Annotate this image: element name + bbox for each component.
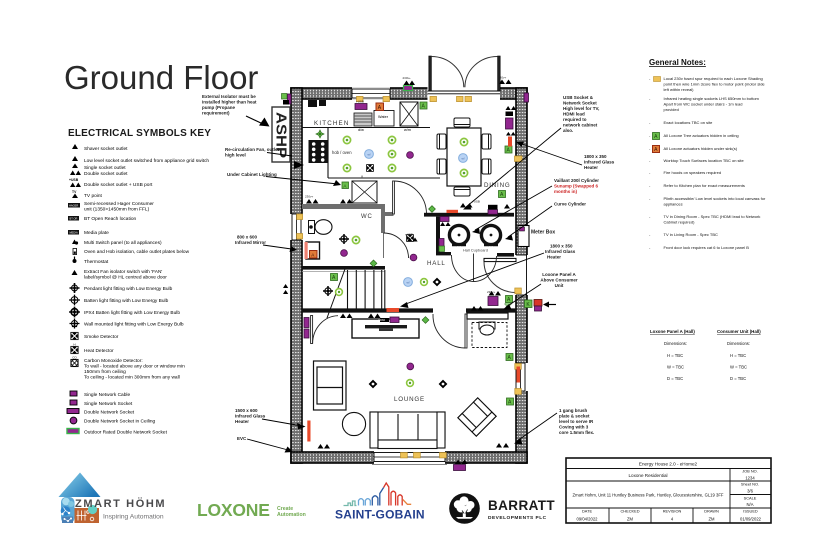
svg-text:Ground Floor: Ground Floor	[64, 59, 258, 96]
svg-text:External Isolator must be: External Isolator must be	[202, 94, 256, 99]
svg-text:+USB: +USB	[69, 178, 79, 182]
svg-text:Infrared Mirror: Infrared Mirror	[235, 240, 266, 245]
svg-text:Inspiring Automation: Inspiring Automation	[103, 514, 164, 521]
svg-text:BARRATT: BARRATT	[488, 498, 555, 513]
svg-text:TV in Living Room - Spec TBC: TV in Living Room - Spec TBC	[664, 232, 719, 237]
svg-text:Double socket outlet: Double socket outlet	[84, 171, 128, 177]
svg-text:H = TBC: H = TBC	[667, 353, 683, 358]
svg-text:Infrared Glass: Infrared Glass	[545, 249, 576, 254]
svg-text:Double Network Socket: Double Network Socket	[84, 410, 135, 416]
svg-text:Cabinet required): Cabinet required)	[664, 220, 696, 225]
svg-text:CO: CO	[72, 355, 77, 359]
svg-text:DATE: DATE	[582, 509, 592, 514]
svg-text:Heater: Heater	[584, 165, 598, 170]
svg-text:USB Socket &: USB Socket &	[563, 95, 594, 100]
svg-text:Extract Fan isolator switch wi: Extract Fan isolator switch with 'FAN'	[84, 269, 162, 275]
svg-text:Batten light fitting with Low: Batten light fitting with Low Energy Bul…	[84, 298, 169, 304]
svg-text:BT Open Reach location: BT Open Reach location	[84, 216, 137, 222]
svg-text:d/w: d/w	[358, 128, 364, 132]
svg-text:DEVELOPMENTS PLC: DEVELOPMENTS PLC	[488, 515, 547, 521]
svg-text:Automation: Automation	[277, 512, 306, 518]
svg-text:High level for TV,: High level for TV,	[563, 106, 599, 111]
svg-text:To ceiling - located min 300m: To ceiling - located min 300mm from any …	[84, 375, 180, 381]
svg-text:Multi Switch panel (to all app: Multi Switch panel (to all appliances)	[84, 240, 162, 246]
svg-text:ZMART HÖHM: ZMART HÖHM	[75, 497, 166, 510]
svg-text:Fire hoods on speakers require: Fire hoods on speakers required	[664, 170, 722, 175]
svg-text:Vaillant 200l Cylinder: Vaillant 200l Cylinder	[554, 178, 599, 183]
svg-text:Sheet NO.: Sheet NO.	[741, 482, 759, 487]
svg-text:+USB: +USB	[356, 100, 364, 104]
svg-text:H: H	[73, 342, 75, 346]
svg-text:ELECTRICAL SYMBOLS KEY: ELECTRICAL SYMBOLS KEY	[68, 128, 211, 139]
svg-text:1 gang brush: 1 gang brush	[559, 408, 588, 413]
svg-text:Consumer Unit (Hall): Consumer Unit (Hall)	[717, 329, 761, 334]
svg-text:Outdoor Rated Double Network S: Outdoor Rated Double Network Socket	[84, 430, 168, 436]
svg-text:Loxone Panel A: Loxone Panel A	[542, 272, 576, 277]
svg-text:SCALE: SCALE	[744, 496, 757, 501]
svg-text:Worktop Touch Surfaces locatio: Worktop Touch Surfaces location TBC on s…	[664, 158, 745, 163]
svg-text:LOUNGE: LOUNGE	[394, 396, 425, 403]
svg-text:MEDIA: MEDIA	[70, 231, 78, 235]
svg-text:HALL: HALL	[427, 260, 446, 267]
svg-text:months in): months in)	[554, 189, 577, 194]
svg-text:DRAWN: DRAWN	[704, 509, 719, 514]
svg-text:Single socket outlet: Single socket outlet	[84, 165, 126, 171]
svg-text:network cabinet: network cabinet	[563, 123, 598, 128]
svg-text:Smoke Detector: Smoke Detector	[84, 334, 119, 340]
svg-text:point then wire 1mm 3core flex: point then wire 1mm 3core flex to motor …	[664, 82, 766, 87]
svg-text:appliances: appliances	[664, 202, 683, 207]
svg-text:Low level socket outlet switch: Low level socket outlet switched from ap…	[84, 158, 209, 164]
svg-text:Loxone Panel A (Hall): Loxone Panel A (Hall)	[650, 329, 695, 334]
svg-text:KITCHEN: KITCHEN	[314, 120, 350, 127]
svg-text:230v+: 230v+	[487, 290, 496, 294]
svg-text:BT OR: BT OR	[70, 217, 78, 221]
svg-text:lf: lf	[361, 175, 363, 179]
svg-text:01/09/2022: 01/09/2022	[740, 517, 762, 522]
svg-text:Meter Box: Meter Box	[531, 230, 555, 236]
svg-text:All Loxone actuators hidden un: All Loxone actuators hidden under sink(s…	[664, 146, 738, 151]
svg-text:EVC: EVC	[237, 436, 247, 441]
svg-text:HDMI: HDMI	[378, 318, 385, 322]
svg-text:Heater: Heater	[547, 255, 561, 260]
svg-text:Heat Detector: Heat Detector	[84, 348, 114, 354]
svg-text:1500 x 600: 1500 x 600	[235, 408, 258, 413]
svg-text:TV: TV	[72, 190, 77, 194]
svg-text:W = TBC: W = TBC	[730, 365, 747, 370]
svg-text:Double socket outlet + USB por: Double socket outlet + USB port	[84, 182, 153, 188]
svg-text:Zmart Hohm, Unit 11 Huntley Bu: Zmart Hohm, Unit 11 Huntley Business Par…	[573, 493, 724, 498]
svg-text:Front door lock requires cat 6: Front door lock requires cat 6 to Loxone…	[664, 245, 750, 250]
svg-text:Pendant light fitting with Low: Pendant light fitting with Low Energy Bu…	[84, 286, 173, 292]
svg-text:Refer to Kitchen plan for exac: Refer to Kitchen plan for exact measurem…	[664, 183, 745, 188]
svg-text:230v+: 230v+	[305, 195, 314, 199]
svg-text:installed higher than heat: installed higher than heat	[202, 100, 257, 105]
svg-text:Under Cabinet Lighting: Under Cabinet Lighting	[227, 172, 277, 177]
svg-text:label/symbol @ HL centred abov: label/symbol @ HL centred above door	[84, 275, 167, 281]
svg-text:wf: wf	[368, 152, 371, 156]
svg-text:Local 230v fused spur required: Local 230v fused spur required to each L…	[664, 76, 763, 81]
svg-text:General Notes:: General Notes:	[649, 58, 706, 67]
svg-text:HAGER: HAGER	[69, 204, 78, 208]
svg-text:N/A: N/A	[747, 502, 754, 507]
svg-text:Infrared heating single socket: Infrared heating single sockets LHS 650m…	[664, 96, 760, 101]
svg-text:Thermostat: Thermostat	[84, 259, 109, 265]
svg-text:Hall Cupboard: Hall Cupboard	[463, 248, 488, 253]
svg-text:Shaver socket outlet: Shaver socket outlet	[84, 146, 128, 152]
svg-text:Semi-recessed Hager Consumer: Semi-recessed Hager Consumer	[84, 201, 154, 207]
svg-text:09/04/2022: 09/04/2022	[577, 517, 599, 522]
svg-text:Exact locations TBC on site: Exact locations TBC on site	[664, 120, 714, 125]
svg-text:Energy House 2.0 - eHome2: Energy House 2.0 - eHome2	[639, 462, 698, 467]
svg-text:1800 x 350: 1800 x 350	[550, 244, 573, 249]
svg-text:D = TBC: D = TBC	[730, 376, 746, 381]
svg-text:DINING: DINING	[484, 182, 510, 189]
svg-text:requirement): requirement)	[202, 111, 230, 116]
svg-text:unit (1350>1450mm from FFL): unit (1350>1450mm from FFL)	[84, 207, 150, 213]
svg-text:high level: high level	[225, 153, 246, 158]
svg-text:1800 x 350: 1800 x 350	[584, 154, 607, 159]
svg-text:hob / oven: hob / oven	[332, 150, 352, 155]
svg-text:H = TBC: H = TBC	[730, 353, 746, 358]
svg-text:Infrared Glass: Infrared Glass	[235, 414, 266, 419]
svg-text:TV point: TV point	[84, 193, 103, 199]
svg-text:3/6: 3/6	[747, 489, 753, 494]
svg-text:TV in Dining Room - Spec TBC (: TV in Dining Room - Spec TBC (HDMI lead …	[664, 214, 761, 219]
svg-text:Infrared Glass: Infrared Glass	[584, 160, 615, 165]
svg-text:also.: also.	[563, 128, 573, 133]
svg-text:SAINT-GOBAIN: SAINT-GOBAIN	[335, 508, 425, 522]
svg-text:All Loxone Tree actuators hidd: All Loxone Tree actuators hidden in ceil…	[664, 133, 739, 138]
svg-text:CHECKED: CHECKED	[620, 509, 639, 514]
svg-text:Re-circulation Fan, outlet: Re-circulation Fan, outlet	[225, 147, 280, 152]
svg-text:IPX4 Batten light fitting with: IPX4 Batten light fitting with Low Energ…	[84, 310, 180, 316]
svg-text:Sunamp (Swapped 6: Sunamp (Swapped 6	[554, 184, 599, 189]
svg-text:Media plate: Media plate	[84, 230, 109, 236]
svg-text:ZM: ZM	[708, 517, 715, 522]
svg-text:Unit: Unit	[555, 283, 564, 288]
svg-text:To wall - located above any do: To wall - located above any door or wind…	[84, 364, 185, 370]
svg-text:D = TBC: D = TBC	[667, 376, 683, 381]
svg-text:Curve Cylinder: Curve Cylinder	[554, 202, 586, 207]
svg-text:Network Socket: Network Socket	[563, 101, 597, 106]
svg-text:ZM: ZM	[627, 517, 634, 522]
svg-text:W = TBC: W = TBC	[667, 365, 684, 370]
svg-text:Loxone Residential: Loxone Residential	[628, 473, 667, 478]
svg-text:Apart from WC socket under sta: Apart from WC socket under stairs - 1m l…	[664, 102, 743, 107]
svg-text:Single Network Cable: Single Network Cable	[84, 392, 130, 398]
svg-text:LOXONE: LOXONE	[197, 500, 270, 520]
svg-text:Dimensions:: Dimensions:	[664, 341, 687, 346]
svg-text:Single Network Socket: Single Network Socket	[84, 401, 133, 407]
svg-text:w/m: w/m	[404, 128, 411, 132]
svg-text:Oven and Hob isolation, cable: Oven and Hob isolation, cable outlet pla…	[84, 249, 190, 255]
svg-text:provided: provided	[664, 107, 679, 112]
svg-text:left within reveal): left within reveal)	[664, 87, 695, 92]
svg-text:required to: required to	[563, 117, 587, 122]
svg-text:HDMI lead: HDMI lead	[563, 112, 585, 117]
svg-text:Carbon Monoxide Detector:: Carbon Monoxide Detector:	[84, 358, 143, 364]
svg-text:230v+: 230v+	[498, 76, 507, 80]
svg-text:core 1.5mm flex.: core 1.5mm flex.	[559, 430, 594, 435]
svg-text:JOB NO.: JOB NO.	[742, 469, 758, 474]
svg-text:Wall mounted light fitting wit: Wall mounted light fitting with Low Ener…	[84, 322, 184, 328]
svg-text:Above Consumer: Above Consumer	[540, 278, 578, 283]
svg-text:WC: WC	[361, 214, 373, 220]
svg-text:REVISION: REVISION	[663, 509, 682, 514]
svg-text:Plinth accessible/ Low level s: Plinth accessible/ Low level sockets int…	[664, 196, 766, 201]
svg-text:150mm from ceiling: 150mm from ceiling	[84, 369, 126, 375]
svg-text:plate & socket: plate & socket	[559, 414, 590, 419]
svg-text:Coving with 3: Coving with 3	[559, 425, 589, 430]
svg-text:wf: wf	[407, 280, 410, 284]
svg-text:level to serve IR: level to serve IR	[559, 419, 594, 424]
svg-text:+USB: +USB	[405, 233, 413, 237]
svg-text:Heater: Heater	[235, 419, 249, 424]
svg-text:ISSUED: ISSUED	[743, 509, 758, 514]
svg-text:Water: Water	[378, 115, 389, 119]
svg-text:800 x 600: 800 x 600	[237, 235, 258, 240]
svg-text:1234: 1234	[745, 476, 755, 481]
svg-text:230v+: 230v+	[403, 76, 412, 80]
svg-text:wf: wf	[462, 156, 465, 160]
svg-text:pump (Propane: pump (Propane	[202, 105, 235, 110]
svg-text:Dimensions:: Dimensions:	[727, 341, 750, 346]
svg-text:Double Network Socket in Ceili: Double Network Socket in Ceiling	[84, 419, 156, 425]
